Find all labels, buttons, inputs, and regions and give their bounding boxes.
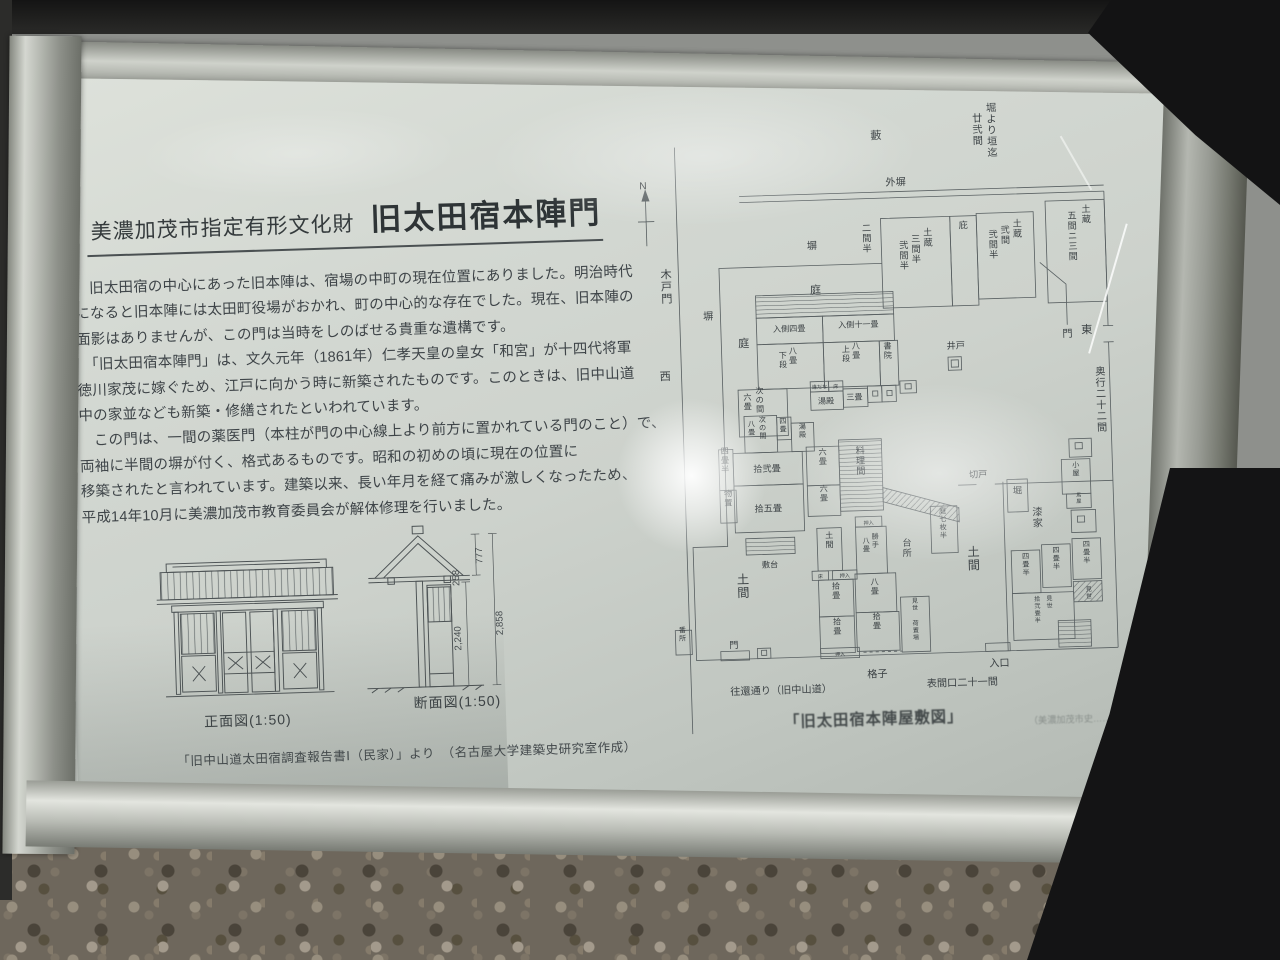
plan-label: 塀 bbox=[807, 240, 818, 252]
plan-label: 小 bbox=[1072, 460, 1079, 469]
plan-label: 土 bbox=[1081, 203, 1090, 214]
plan-label: 弐 bbox=[1034, 602, 1040, 610]
plan-label: 入側四畳 bbox=[773, 323, 806, 334]
dim-eaves: 258 bbox=[451, 570, 463, 587]
plan-label: 畳 bbox=[852, 351, 860, 360]
plan-label: 五 bbox=[1067, 211, 1076, 221]
plan-label: 東 bbox=[1081, 323, 1093, 336]
plan-label: 四 bbox=[1083, 540, 1090, 548]
plan-label: 拾 bbox=[872, 611, 880, 621]
plan-label: 院 bbox=[884, 350, 892, 360]
plan-label: 畳 bbox=[779, 425, 786, 433]
plan-label: 間 bbox=[825, 540, 833, 549]
plan-label: 弐 bbox=[1000, 224, 1009, 235]
sign-panel: 美濃加茂市指定有形文化財旧太田宿本陣門 旧太田宿の中心にあった旧本陣は、宿場の中… bbox=[61, 78, 1173, 807]
plan-label: 間 bbox=[759, 432, 766, 440]
plan-label: 畳 bbox=[748, 428, 755, 436]
plan-label: 置 bbox=[913, 627, 919, 634]
plan-label: 畳 bbox=[833, 627, 841, 636]
plan-label: 所 bbox=[679, 634, 686, 643]
plan-label: 戸 bbox=[661, 281, 673, 293]
plan-label: 畳 bbox=[873, 621, 881, 630]
plan-label: 拾五畳 bbox=[754, 502, 782, 514]
plan-label: 庭 bbox=[939, 506, 946, 515]
plan-label: 土 bbox=[737, 572, 750, 586]
plan-label: 三 bbox=[1068, 241, 1077, 251]
plan-label: 庭 bbox=[810, 283, 822, 297]
plan-label: 蔵 bbox=[1013, 228, 1022, 239]
plan-label: 世 bbox=[912, 604, 918, 612]
plan-label: 枚 bbox=[939, 522, 946, 531]
plan-label: 外塀 bbox=[885, 176, 906, 189]
plan-label: 畳 bbox=[863, 545, 870, 553]
plan-label: 廿 bbox=[972, 113, 983, 125]
plan-label: ニ bbox=[1068, 231, 1077, 241]
sign-content: 美濃加茂市指定有形文化財旧太田宿本陣門 旧太田宿の中心にあった旧本陣は、宿場の中… bbox=[61, 78, 1173, 807]
plan-label: 二 bbox=[862, 223, 871, 233]
plan-label: 畳 bbox=[744, 402, 752, 411]
plan-label: 奥 bbox=[1095, 365, 1106, 378]
plan-label: 表間口二十一間 bbox=[927, 675, 999, 690]
plan-label: 漆 bbox=[1032, 505, 1043, 518]
plan-label: 堀 bbox=[986, 102, 997, 114]
dark-top-band bbox=[0, 0, 1280, 34]
plan-label: 畳 bbox=[1053, 554, 1060, 562]
plan-label: 畳 bbox=[820, 493, 828, 502]
plan-label: 間 bbox=[756, 405, 764, 414]
plan-label: 半 bbox=[721, 464, 729, 474]
plan-label: 次 bbox=[755, 385, 763, 395]
plan-label: 堀 bbox=[1013, 485, 1022, 495]
plan-label: 間 bbox=[911, 244, 920, 254]
designation-label: 美濃加茂市指定有形文化財 bbox=[90, 213, 355, 244]
description-text: 旧太田宿の中心にあった旧本陣は、宿場の中町の現在位置にありました。明治時代になる… bbox=[74, 259, 668, 531]
plan-label: 半 bbox=[1053, 562, 1060, 571]
plan-label: 八 bbox=[862, 537, 869, 545]
plan-label: 床 bbox=[818, 573, 823, 580]
plan-label: 間 bbox=[862, 233, 871, 243]
plan-label: 半 bbox=[940, 531, 947, 540]
plan-label: 殿 bbox=[799, 431, 806, 439]
plan-label: 半 bbox=[900, 260, 909, 271]
plan-label: 弐 bbox=[988, 228, 997, 239]
plan-label: 入口 bbox=[989, 657, 1010, 670]
plan-label: 物 bbox=[724, 488, 732, 498]
plan-label: 木 bbox=[660, 268, 672, 281]
plan-label: 世 bbox=[1086, 592, 1092, 600]
plan-label: 蔵 bbox=[923, 236, 932, 247]
plan-label: 半 bbox=[912, 253, 921, 264]
plan-label: 下 bbox=[779, 351, 787, 360]
plan-linework bbox=[636, 134, 1126, 735]
dim-opening: 2,240 bbox=[453, 625, 465, 650]
plan-label: 番 bbox=[679, 625, 686, 634]
plan-label: 八 bbox=[748, 420, 755, 428]
plan-label: 間 bbox=[989, 239, 998, 249]
section-drawing-caption: 断面図(1:50) bbox=[413, 690, 501, 713]
plan-label: 押入 bbox=[840, 572, 850, 579]
plan-label: 庭 bbox=[738, 336, 750, 350]
plan-label: 塀 bbox=[703, 311, 714, 323]
plan-label: 荷 bbox=[912, 619, 918, 627]
plan-label: 格子 bbox=[867, 667, 888, 681]
plan-label: 間 bbox=[968, 558, 981, 572]
glare-overlay bbox=[137, 103, 460, 203]
plan-label: 勝 bbox=[871, 532, 878, 541]
plan-label: よ bbox=[986, 113, 997, 125]
plan-label: 湯殿 bbox=[818, 395, 835, 406]
plan-label: 六 bbox=[818, 447, 826, 457]
plan-label: 七 bbox=[939, 514, 946, 523]
plan-label: 弐 bbox=[972, 124, 983, 136]
plan-label: 切戸 bbox=[969, 469, 988, 480]
plan-label: 弐 bbox=[899, 239, 908, 250]
plan-label: 場 bbox=[913, 633, 919, 641]
plan-label: 往還通り（旧中山道） bbox=[730, 682, 832, 698]
plan-label: 畳 bbox=[871, 587, 879, 596]
floor-plan-svg: N木戸門西藪堀より垣迄廿弐間外塀二間半土蔵三間半弐間半庇土蔵弐間弐間半土蔵五間ニ… bbox=[622, 80, 1172, 748]
plan-label: 土 bbox=[1012, 217, 1021, 228]
plan-label: 手 bbox=[872, 540, 879, 549]
plan-label: 世 bbox=[1046, 602, 1052, 610]
plan-label: 六 bbox=[743, 392, 751, 402]
plan-label: の bbox=[759, 424, 766, 432]
plan-label: 屋 bbox=[1076, 499, 1081, 505]
plan-label: 間 bbox=[899, 250, 908, 260]
plan-label: 台 bbox=[902, 537, 911, 548]
plan-label: 拾 bbox=[832, 581, 840, 591]
plan-label: 半 bbox=[862, 242, 871, 253]
plan-label: 藪 bbox=[870, 129, 882, 142]
plan-label: 四 bbox=[779, 417, 786, 425]
plan-label: 屋 bbox=[1072, 469, 1079, 477]
plan-label: 拾 bbox=[1034, 595, 1040, 603]
plan-label: 三畳 bbox=[846, 393, 863, 403]
plan-label: 土 bbox=[967, 545, 980, 559]
plan-label: 土 bbox=[923, 226, 932, 237]
plan-label: 畳 bbox=[832, 591, 840, 600]
plan-label: 門 bbox=[729, 640, 738, 650]
plan-label: 門 bbox=[1062, 328, 1073, 340]
plan-label: 畳 bbox=[1034, 610, 1040, 617]
plan-label: 畳 bbox=[819, 457, 827, 466]
plan-label: 間 bbox=[973, 135, 984, 147]
plan-label: 四 bbox=[720, 447, 728, 456]
plan-label: 違だな bbox=[812, 383, 827, 390]
plan-label: 八 bbox=[870, 578, 878, 587]
frame-left-post bbox=[2, 36, 81, 855]
dim-roof: 777 bbox=[474, 547, 486, 564]
sign-title: 旧太田宿本陣門 bbox=[370, 195, 602, 237]
plan-label: 拾 bbox=[833, 616, 841, 626]
plan-label: 見 bbox=[912, 598, 918, 605]
plan-label: 庇 bbox=[958, 219, 967, 230]
plan-label: 迄 bbox=[987, 146, 998, 159]
plan-label: 湯 bbox=[799, 422, 806, 431]
plan-label: 見 bbox=[1046, 595, 1052, 602]
plan-label: 上 bbox=[842, 345, 850, 354]
plan-label: 十 bbox=[1096, 398, 1107, 411]
plan-label: 二 bbox=[1096, 411, 1107, 422]
plan-label: 半 bbox=[1083, 556, 1090, 565]
plan-label: 置 bbox=[724, 499, 732, 508]
plan-label: 半 bbox=[989, 249, 998, 260]
photo-of-information-board: { "colors":{"panel":"#d3d8d2","ink":"#3c… bbox=[0, 0, 1280, 960]
plan-label: 書 bbox=[883, 341, 891, 351]
plan-label: 所 bbox=[903, 548, 912, 558]
plan-label: 蔵 bbox=[1082, 213, 1091, 224]
plan-label: 八 bbox=[789, 347, 797, 356]
plan-label: 床 bbox=[833, 383, 838, 390]
front-elevation-drawing bbox=[151, 552, 346, 716]
plan-label: の bbox=[756, 396, 764, 405]
plan-label: 間 bbox=[1069, 251, 1078, 261]
sign-header: 美濃加茂市指定有形文化財旧太田宿本陣門 bbox=[90, 187, 602, 248]
plan-label: 半 bbox=[1022, 568, 1029, 577]
plan-label: 門 bbox=[661, 293, 673, 306]
plan-label: 半 bbox=[1035, 616, 1041, 624]
plan-label: 段 bbox=[779, 359, 787, 369]
plan-label: 畳 bbox=[1022, 561, 1029, 569]
plan-label: 二 bbox=[1096, 389, 1107, 400]
plan-label: 八 bbox=[852, 342, 860, 351]
plan-label: 間 bbox=[737, 586, 750, 600]
plan-label: N bbox=[639, 181, 647, 192]
plan-label: 土 bbox=[825, 530, 833, 540]
front-drawing-caption: 正面図(1:50) bbox=[204, 709, 292, 732]
dim-total: 2,858 bbox=[494, 611, 506, 636]
plan-label: 四 bbox=[1022, 552, 1029, 560]
plan-label: り bbox=[987, 124, 998, 136]
plan-label: 料 bbox=[855, 444, 864, 455]
plan-label: 行 bbox=[1095, 376, 1106, 389]
plan-label: 押入 bbox=[863, 520, 873, 527]
plan-label: 押入 bbox=[835, 651, 845, 658]
plan-label: 段 bbox=[842, 353, 850, 363]
plan-label: 垣 bbox=[987, 136, 998, 148]
plan-label: 家 bbox=[1033, 516, 1044, 529]
plan-label: 理 bbox=[856, 456, 865, 466]
plan-label: 見 bbox=[1086, 586, 1092, 593]
plan-label: 六 bbox=[819, 483, 827, 493]
plan-label: 三 bbox=[911, 234, 920, 244]
plan-label: 畳 bbox=[721, 456, 729, 465]
plan-label: 間 bbox=[1097, 422, 1108, 434]
plan-label: 畳 bbox=[789, 356, 797, 365]
plan-label: 拾弐畳 bbox=[753, 462, 781, 474]
plan-label: 四 bbox=[1052, 546, 1059, 554]
plan-label: 入側十一畳 bbox=[838, 319, 879, 330]
plan-label: 西 bbox=[659, 371, 671, 383]
plan-label: 「旧太田宿本陣屋敷図」 bbox=[784, 707, 964, 731]
plan-label: 間 bbox=[856, 466, 865, 476]
plan-label: 間 bbox=[1068, 221, 1077, 231]
plan-label: 畳 bbox=[1083, 548, 1090, 556]
plan-label: 敷台 bbox=[762, 559, 779, 570]
plan-label: 井戸 bbox=[946, 339, 965, 351]
plan-label: 次 bbox=[759, 415, 766, 424]
plan-label: 間 bbox=[1001, 235, 1010, 245]
drawings-source-caption: 「旧中山道太田宿調査報告書Ⅰ（民家）」より （名古屋大学建築史研究室作成） bbox=[177, 736, 637, 769]
